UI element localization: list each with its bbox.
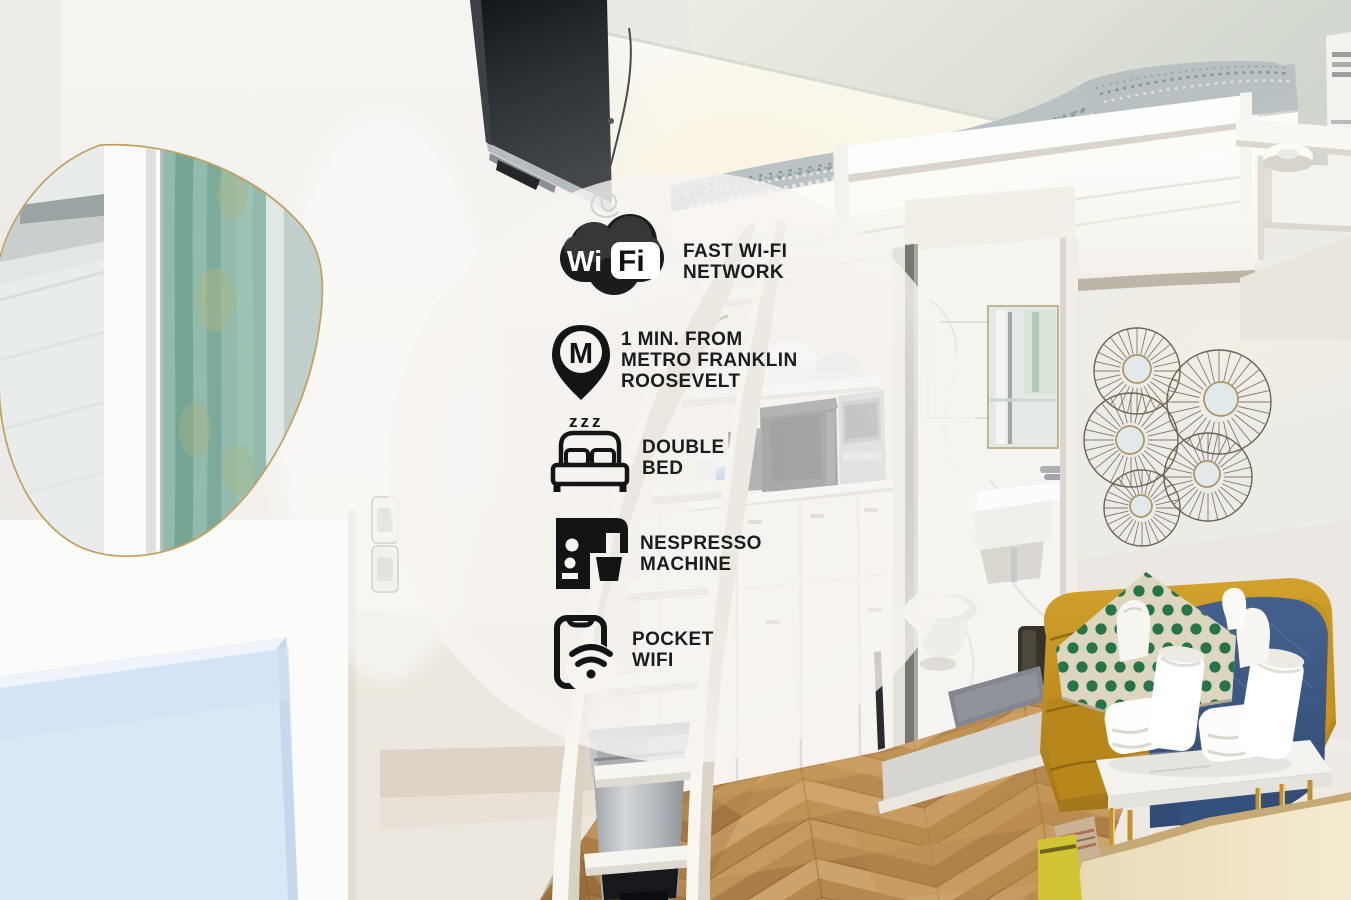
svg-text:Wi: Wi (567, 246, 602, 278)
svg-text:MACHINE: MACHINE (640, 554, 731, 575)
svg-text:POCKET: POCKET (632, 629, 714, 650)
svg-text:1 MIN. FROM: 1 MIN. FROM (621, 329, 743, 350)
svg-text:METRO FRANKLIN: METRO FRANKLIN (621, 350, 798, 371)
svg-text:NESPRESSO: NESPRESSO (640, 533, 762, 554)
svg-text:DOUBLE: DOUBLE (642, 437, 725, 458)
svg-text:BED: BED (642, 458, 683, 479)
svg-text:zzz: zzz (569, 412, 604, 431)
svg-text:Fi: Fi (618, 245, 645, 278)
svg-text:WIFI: WIFI (632, 650, 674, 671)
svg-text:M: M (569, 338, 593, 370)
svg-text:ROOSEVELT: ROOSEVELT (621, 371, 740, 392)
svg-text:NETWORK: NETWORK (683, 262, 784, 283)
svg-text:FAST WI-FI: FAST WI-FI (683, 241, 787, 262)
